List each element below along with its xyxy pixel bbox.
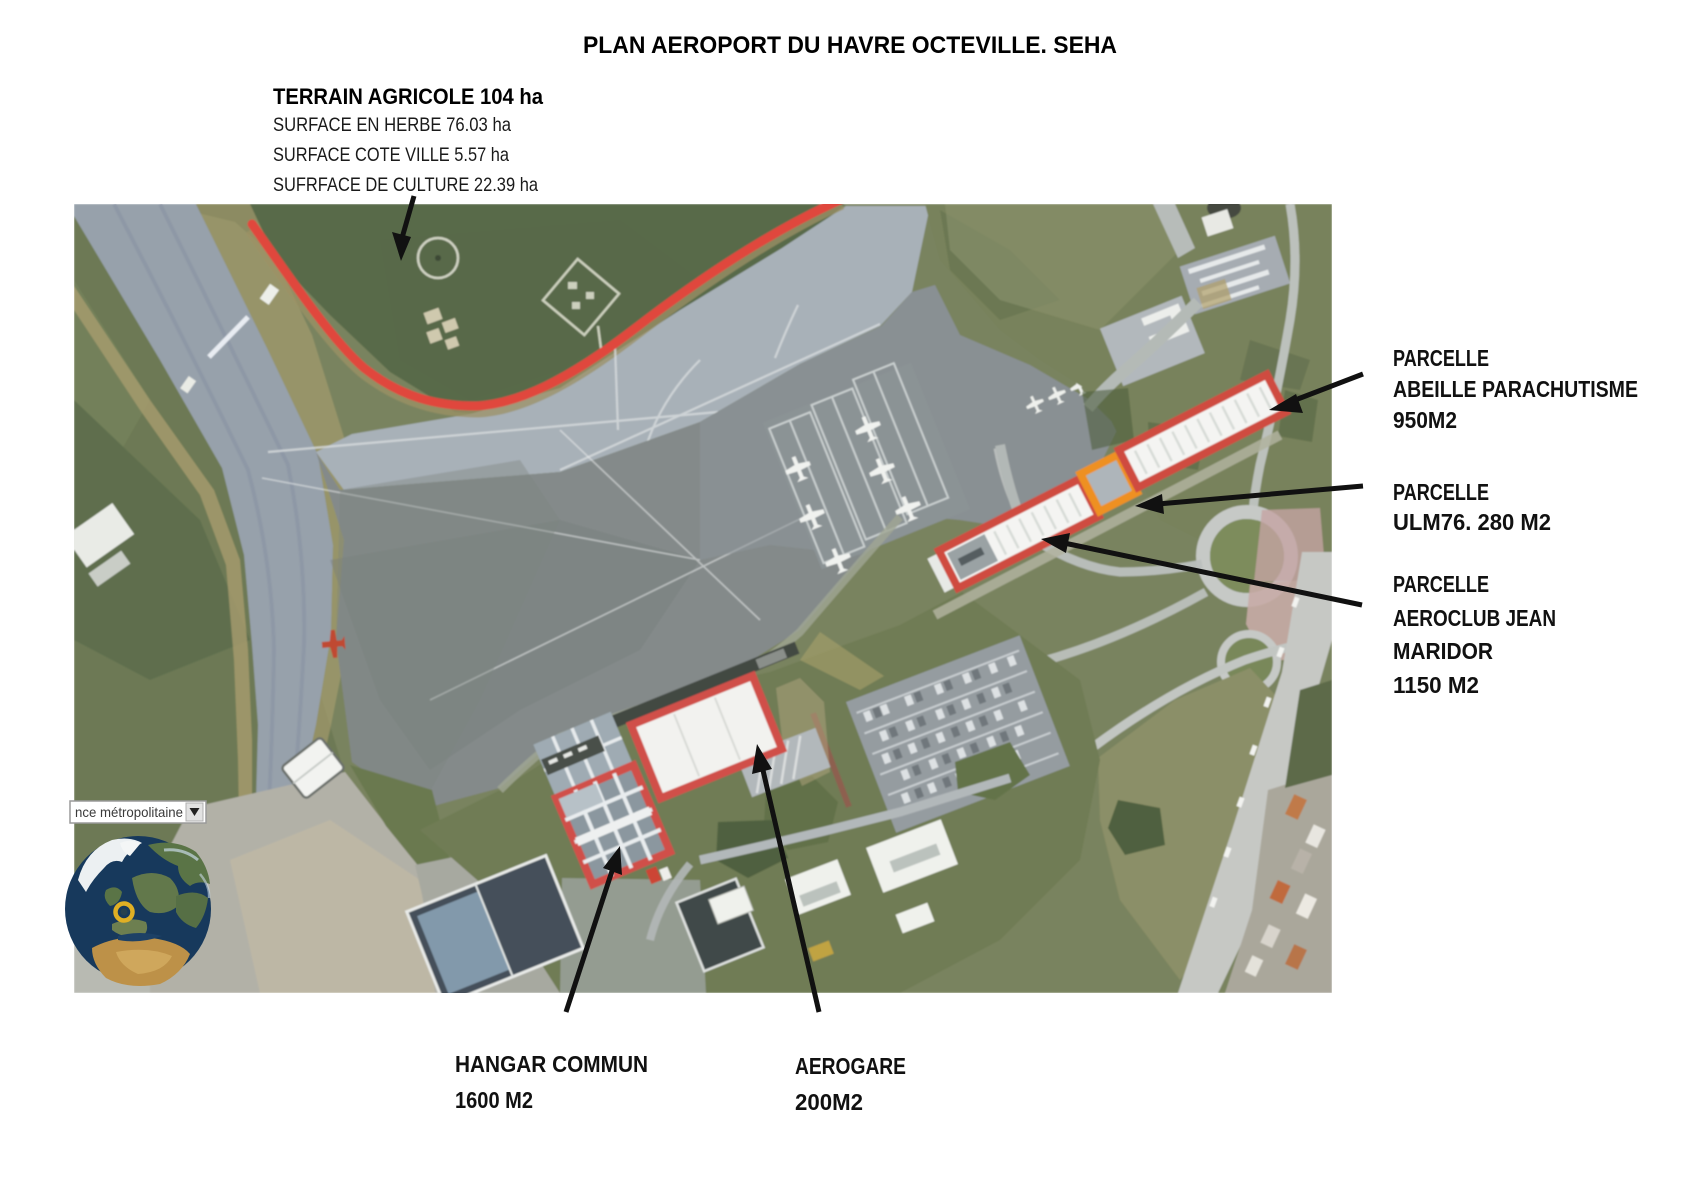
svg-text:PARCELLE: PARCELLE bbox=[1393, 479, 1489, 505]
svg-text:TERRAIN AGRICOLE 104 ha: TERRAIN AGRICOLE 104 ha bbox=[273, 84, 544, 109]
svg-text:200M2: 200M2 bbox=[795, 1089, 863, 1115]
svg-text:MARIDOR: MARIDOR bbox=[1393, 638, 1493, 664]
svg-text:PLAN AEROPORT DU HAVRE OCTEVIL: PLAN AEROPORT DU HAVRE OCTEVILLE. SEHA bbox=[583, 32, 1117, 59]
svg-text:HANGAR COMMUN: HANGAR COMMUN bbox=[455, 1051, 648, 1077]
svg-text:AEROGARE: AEROGARE bbox=[795, 1053, 906, 1079]
svg-text:SURFACE COTE VILLE 5.57 ha: SURFACE COTE VILLE 5.57 ha bbox=[273, 144, 509, 166]
svg-text:1600 M2: 1600 M2 bbox=[455, 1087, 533, 1113]
svg-text:1150 M2: 1150 M2 bbox=[1393, 672, 1479, 698]
svg-text:nce métropolitaine: nce métropolitaine bbox=[75, 804, 183, 820]
svg-text:PARCELLE: PARCELLE bbox=[1393, 345, 1489, 371]
svg-text:950M2: 950M2 bbox=[1393, 407, 1457, 433]
svg-text:ABEILLE PARACHUTISME: ABEILLE PARACHUTISME bbox=[1393, 376, 1638, 402]
svg-text:ULM76. 280 M2: ULM76. 280 M2 bbox=[1393, 509, 1551, 535]
svg-text:SUFRFACE DE CULTURE 22.39 ha: SUFRFACE DE CULTURE 22.39 ha bbox=[273, 174, 538, 196]
svg-text:AEROCLUB JEAN: AEROCLUB JEAN bbox=[1393, 605, 1556, 631]
svg-text:PARCELLE: PARCELLE bbox=[1393, 571, 1489, 597]
svg-text:SURFACE EN HERBE 76.03 ha: SURFACE EN HERBE 76.03 ha bbox=[273, 114, 511, 136]
